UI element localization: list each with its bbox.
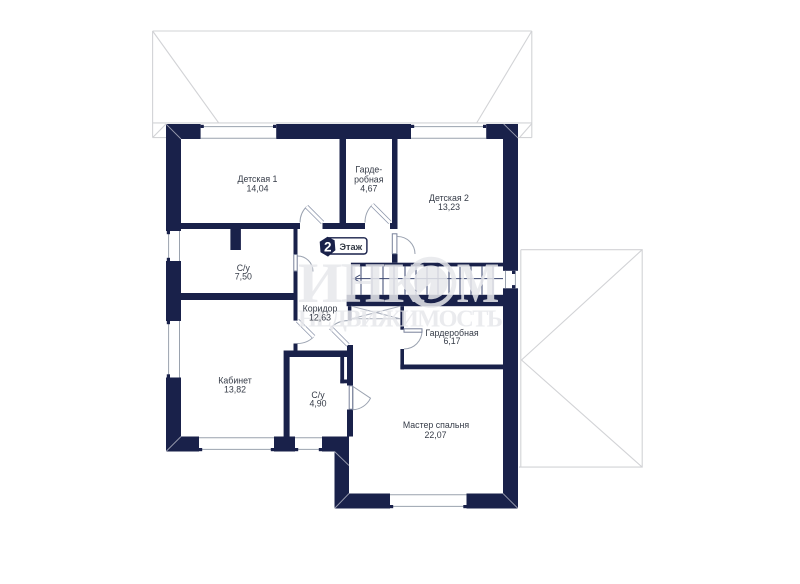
svg-text:22,07: 22,07 — [424, 430, 446, 440]
svg-text:4,67: 4,67 — [360, 184, 377, 194]
svg-text:7,50: 7,50 — [235, 272, 252, 282]
svg-text:Гарде-: Гарде- — [355, 165, 382, 175]
svg-text:Детская 1: Детская 1 — [238, 174, 278, 184]
svg-text:2: 2 — [324, 240, 332, 255]
svg-text:Мастер спальня: Мастер спальня — [403, 420, 470, 430]
svg-text:Этаж: Этаж — [339, 242, 362, 252]
svg-text:13,23: 13,23 — [438, 202, 460, 212]
svg-text:14,04: 14,04 — [246, 184, 268, 194]
svg-text:6,17: 6,17 — [443, 336, 460, 346]
svg-text:12,63: 12,63 — [309, 313, 331, 323]
svg-text:13,82: 13,82 — [224, 385, 246, 395]
svg-text:4,90: 4,90 — [309, 399, 326, 409]
